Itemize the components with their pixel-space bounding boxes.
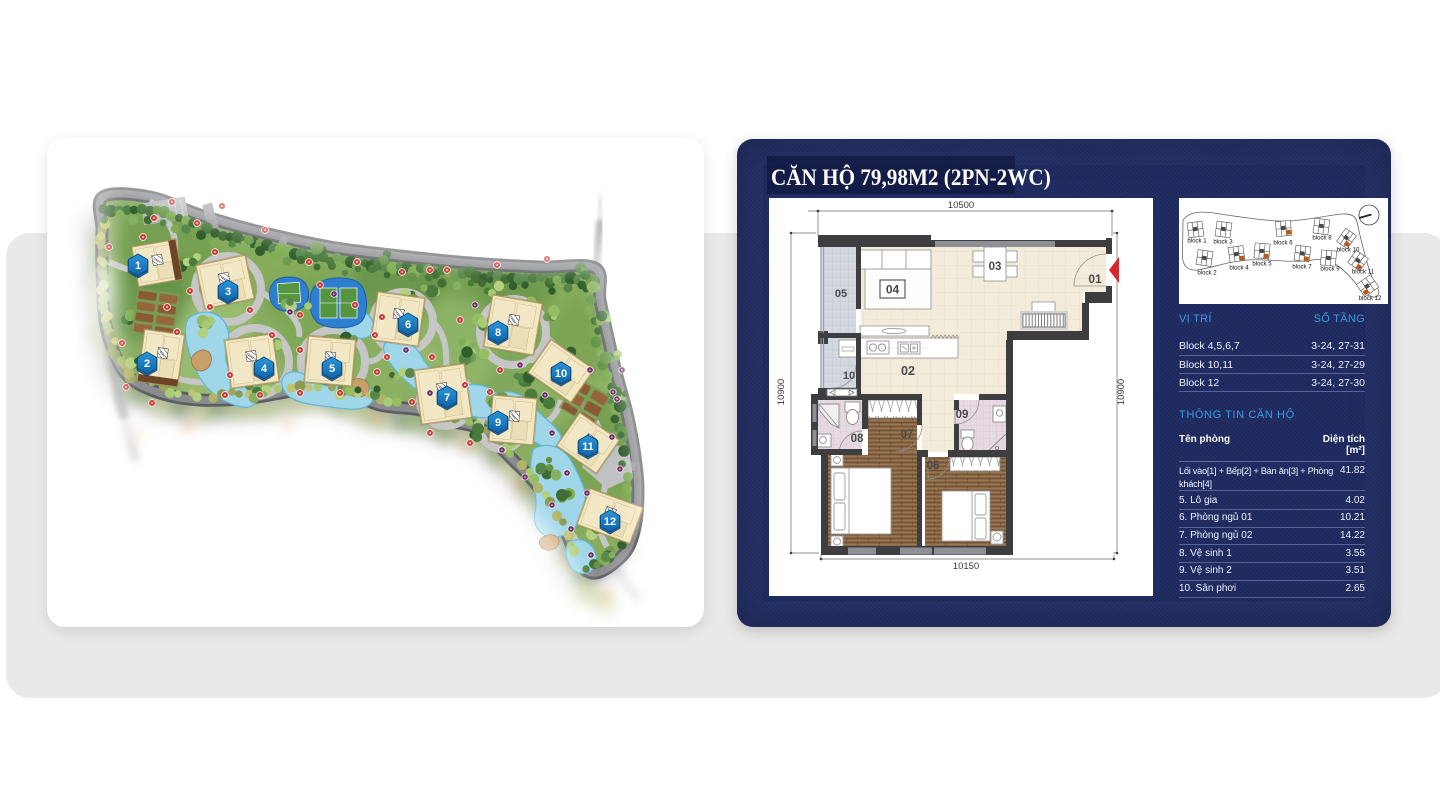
svg-text:02: 02 (901, 364, 915, 378)
svg-text:09: 09 (956, 409, 969, 421)
svg-text:12: 12 (604, 516, 616, 528)
svg-text:8: 8 (495, 327, 501, 339)
svg-text:2: 2 (144, 358, 150, 370)
svg-text:06: 06 (927, 460, 940, 472)
svg-text:10150: 10150 (953, 561, 979, 572)
svg-text:5: 5 (329, 363, 335, 375)
svg-text:01: 01 (1088, 272, 1102, 286)
svg-text:10: 10 (555, 368, 567, 380)
svg-text:03: 03 (989, 261, 1002, 273)
svg-text:07: 07 (901, 429, 914, 441)
svg-text:10900: 10900 (1116, 379, 1127, 405)
svg-text:05: 05 (835, 288, 847, 300)
svg-text:11: 11 (582, 441, 594, 453)
svg-text:9: 9 (495, 417, 501, 429)
svg-text:7: 7 (444, 392, 450, 404)
svg-text:4: 4 (261, 363, 268, 375)
svg-text:10500: 10500 (948, 200, 974, 211)
svg-text:6: 6 (405, 319, 411, 331)
svg-text:10: 10 (843, 370, 855, 382)
svg-text:3: 3 (225, 286, 231, 298)
svg-text:10900: 10900 (776, 379, 787, 405)
svg-text:04: 04 (886, 283, 900, 297)
svg-text:1: 1 (135, 260, 141, 272)
svg-text:08: 08 (851, 433, 864, 445)
